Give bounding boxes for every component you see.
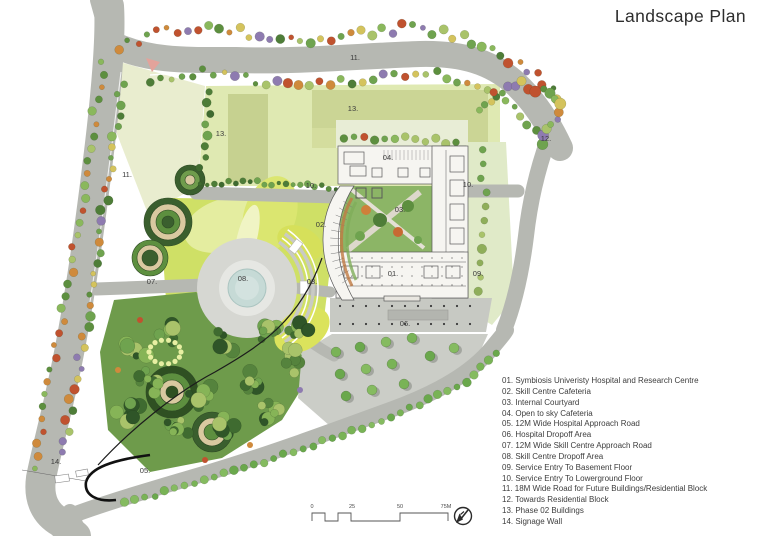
legend-item: 06. Hospital Dropoff Area: [502, 430, 754, 441]
legend-item: 14. Signage Wall: [502, 517, 754, 528]
legend-list: 01. Symbiosis Univeristy Hospital and Re…: [502, 376, 754, 528]
legend-item: 13. Phase 02 Buildings: [502, 506, 754, 517]
legend-item: 08. Skill Centre Dropoff Area: [502, 452, 754, 463]
plan-label: 13.: [348, 104, 358, 113]
plan-label: 07.: [147, 277, 157, 286]
plan-label: 10.: [463, 180, 473, 189]
legend-item: 09. Service Entry To Basement Floor: [502, 463, 754, 474]
plan-label: 03.: [395, 205, 405, 214]
plan-label: 14.: [51, 457, 61, 466]
legend-item: 04. Open to sky Cafeteria: [502, 409, 754, 420]
landscape-plan-sheet: 11.13.13.11.10.10.12.04.03.02.01.09.08.0…: [0, 0, 760, 536]
legend-item: 05. 12M Wide Hospital Approach Road: [502, 419, 754, 430]
plan-label: 10.: [306, 181, 316, 190]
scale-label: 50: [397, 504, 403, 510]
legend-item: 10. Service Entry To Lowerground Floor: [502, 474, 754, 485]
plan-label: 09.: [473, 269, 483, 278]
scale-label: 75M: [441, 504, 452, 510]
legend-item: 01. Symbiosis Univeristy Hospital and Re…: [502, 376, 754, 387]
legend-item: 12. Towards Residential Block: [502, 495, 754, 506]
legend-item: 11. 18M Wide Road for Future Buildings/R…: [502, 484, 754, 495]
legend-item: 02. Skill Centre Cafeteria: [502, 387, 754, 398]
plan-label: 02.: [316, 220, 326, 229]
legend-item: 07. 12M Wide Skill Centre Approach Road: [502, 441, 754, 452]
plan-label: 01.: [388, 269, 398, 278]
plan-label: 04.: [383, 153, 393, 162]
plan-label: 08.: [307, 277, 317, 286]
plan-label: 11.: [122, 170, 132, 179]
plan-label: 12.: [541, 134, 551, 143]
building-main-wing: [336, 252, 468, 298]
hospital-dropoff-plaza: [330, 298, 492, 332]
scale-label: 0: [310, 504, 313, 510]
scale-label: 25: [349, 504, 355, 510]
plan-label: 08.: [238, 274, 248, 283]
plan-label: 05.: [140, 466, 150, 475]
plan-label: 11.: [350, 53, 360, 62]
plan-label: 13.: [216, 129, 226, 138]
legend-item: 03. Internal Courtyard: [502, 398, 754, 409]
plan-label: 06.: [400, 319, 410, 328]
page-title: Landscape Plan: [615, 6, 746, 27]
